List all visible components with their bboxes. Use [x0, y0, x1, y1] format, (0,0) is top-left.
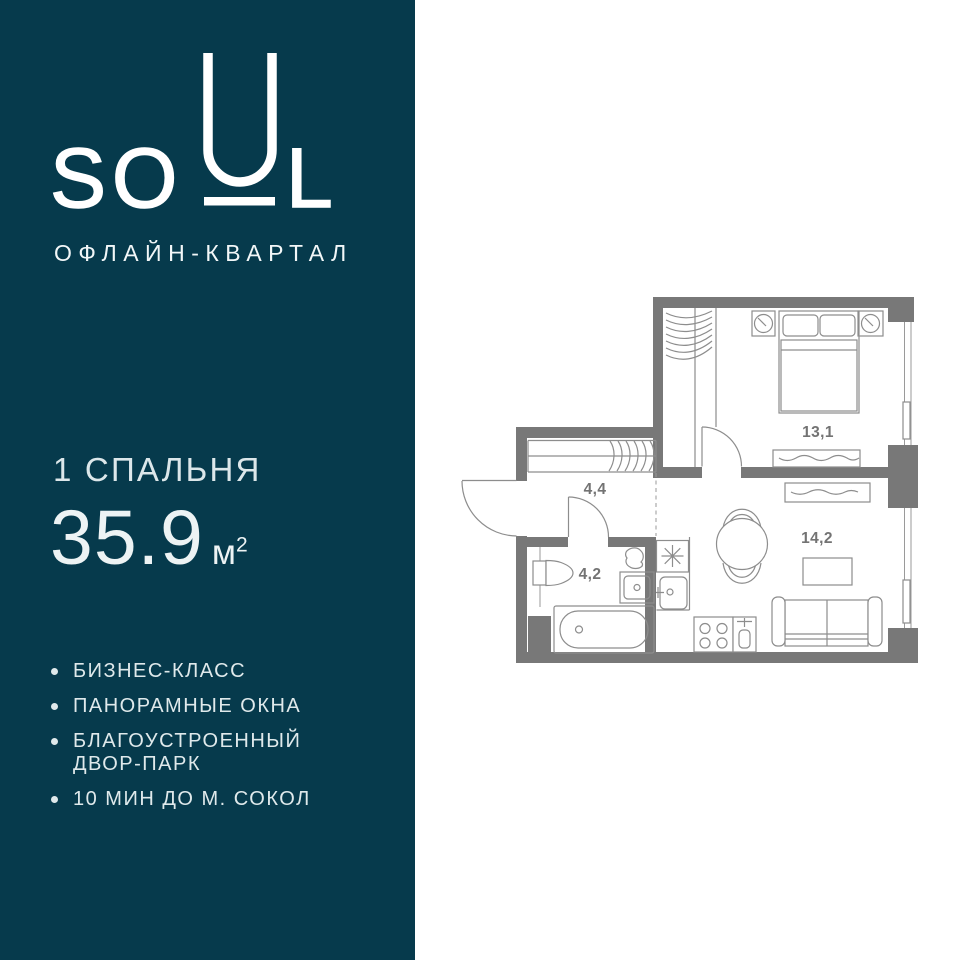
room-label-bedroom: 13,1	[802, 424, 834, 441]
area-unit: м2	[212, 533, 248, 572]
feature-item: БИЗНЕС-КЛАСС	[50, 660, 340, 683]
bedroom-wardrobe	[666, 308, 716, 467]
window-leaf	[903, 402, 910, 439]
entrance-door	[462, 481, 517, 537]
brand-panel: SO L ОФЛАЙН-КВАРТАЛ 1 СПАЛЬНЯ 35.9м2 БИЗ…	[0, 0, 415, 960]
stove	[694, 617, 733, 652]
hallway-closet	[528, 441, 656, 473]
armrest	[868, 597, 882, 646]
bullet-dot	[51, 668, 58, 675]
feature-label: БИЗНЕС-КЛАСС	[73, 660, 246, 682]
bathtub	[554, 606, 654, 653]
living-window	[903, 508, 911, 628]
bathroom-fixtures	[533, 547, 654, 653]
oven	[733, 617, 756, 652]
toilet	[533, 561, 573, 586]
window-leaf	[903, 580, 910, 623]
feature-label: ПАНОРАМНЫЕ ОКНА	[73, 695, 301, 717]
dining-table	[717, 519, 768, 570]
area-number: 35.9	[50, 495, 204, 581]
hob-symbol	[657, 541, 689, 573]
dining-set	[717, 509, 768, 583]
room-label-living: 14,2	[801, 530, 833, 547]
bed	[779, 311, 859, 413]
ad-canvas: SO L ОФЛАЙН-КВАРТАЛ 1 СПАЛЬНЯ 35.9м2 БИЗ…	[0, 0, 960, 960]
logo-text-l: L	[286, 131, 333, 217]
feature-item: ПАНОРАМНЫЕ ОКНА	[50, 695, 340, 718]
walls	[516, 297, 918, 663]
bullet-dot	[51, 738, 58, 745]
logo-subtitle: ОФЛАЙН-КВАРТАЛ	[54, 240, 353, 267]
sofa	[772, 597, 882, 646]
feature-item: 10 МИН ДО М. СОКОЛ	[50, 788, 340, 811]
feature-label: БЛАГОУСТРОЕННЫЙ ДВОР-ПАРК	[73, 730, 301, 775]
bedroom-window	[903, 322, 911, 445]
soul-logo: SO L	[45, 45, 365, 217]
pillow	[820, 315, 855, 336]
area-unit-exponent: 2	[236, 533, 248, 556]
area-unit-letter: м	[212, 533, 236, 572]
logo-u-underline	[204, 197, 275, 206]
bathroom-door	[569, 497, 609, 537]
coffee-table	[803, 558, 852, 585]
bullet-dot	[51, 796, 58, 803]
nightstand-right	[858, 311, 883, 336]
room-label-bathroom: 4,2	[579, 566, 602, 583]
towel-dryer	[626, 548, 644, 569]
feature-label: 10 МИН ДО М. СОКОЛ	[73, 788, 311, 810]
bedroom-door	[702, 427, 742, 467]
feature-list: БИЗНЕС-КЛАСС ПАНОРАМНЫЕ ОКНА БЛАГОУСТРОЕ…	[50, 660, 340, 823]
drain	[576, 626, 583, 633]
bullet-dot	[51, 703, 58, 710]
pillow	[783, 315, 818, 336]
logo-u-glyph	[208, 53, 272, 182]
area-value: 35.9м2	[50, 494, 248, 583]
logo-text-so: SO	[50, 131, 183, 217]
bedrooms-label: 1 СПАЛЬНЯ	[53, 451, 262, 489]
kitchen-sink	[656, 577, 687, 609]
nightstand-left	[752, 311, 775, 336]
tv-stand	[785, 483, 870, 502]
bedroom-dresser	[773, 450, 860, 467]
room-label-hallway: 4,4	[584, 481, 607, 498]
floor-plan: 13,1 4,4 4,2 14,2	[440, 285, 930, 675]
feature-item: БЛАГОУСТРОЕННЫЙ ДВОР-ПАРК	[50, 730, 340, 776]
armrest	[772, 597, 785, 646]
